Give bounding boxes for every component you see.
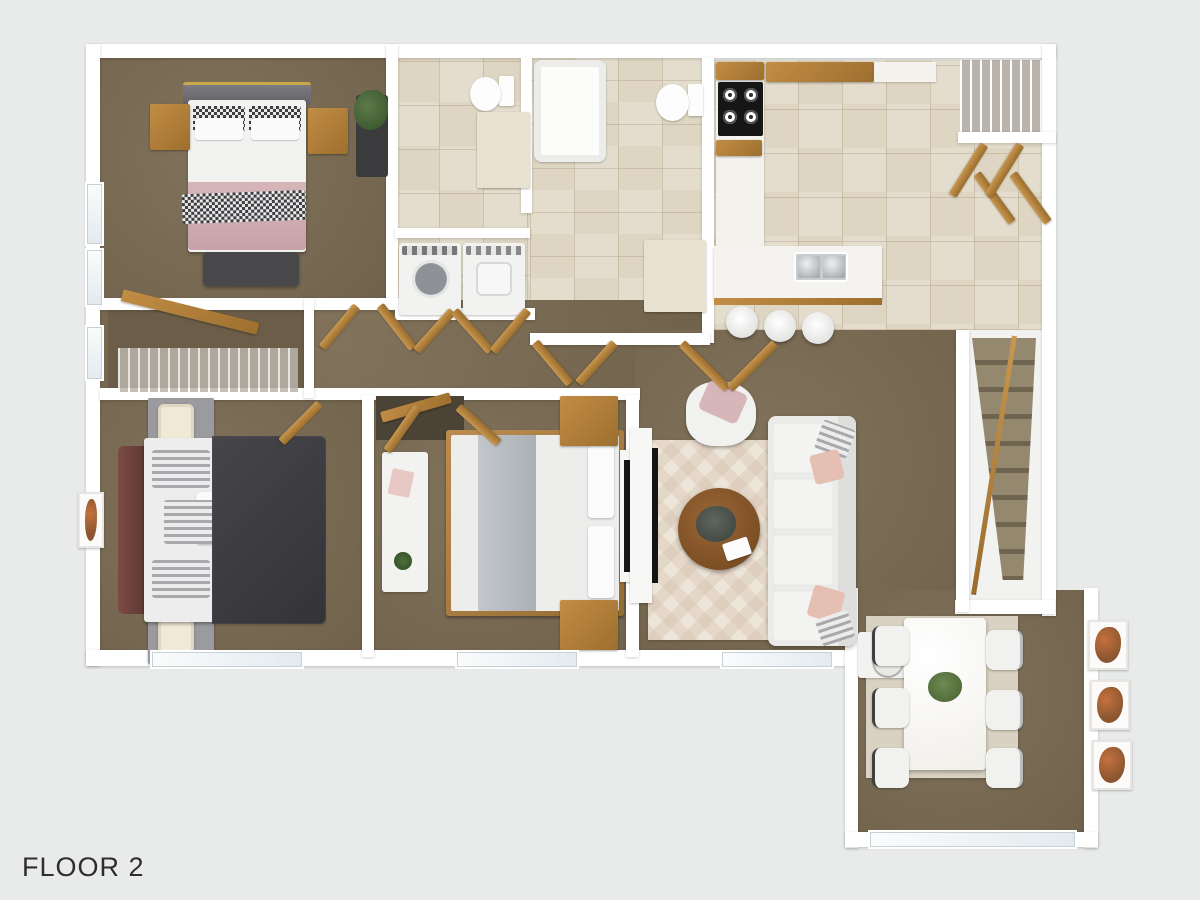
dining-chair-left-2	[872, 688, 909, 728]
living-tv	[652, 448, 658, 583]
dining-chair-right-2	[986, 690, 1023, 730]
bedroom2-headboard	[118, 446, 146, 614]
kitchen-barstool-3	[802, 312, 834, 344]
dining-wall-art-2	[1090, 680, 1130, 730]
bedroom3-nightstand-bottom	[560, 600, 618, 650]
bathroom2-toilet-bowl	[656, 84, 689, 121]
kitchen-barstool-2	[764, 310, 796, 342]
laundry-dryer-door	[476, 262, 512, 296]
dining-chair-right-3	[986, 748, 1023, 788]
laundry-washer-controls	[402, 246, 458, 255]
bedroom3-nightstand-top	[560, 396, 618, 446]
dining-chair-left-3	[872, 748, 909, 788]
dining-wall-art-3	[1092, 740, 1132, 790]
kitchen-upper-cabinets-wood	[766, 62, 874, 82]
bedroom1-pillow-white-left	[195, 118, 243, 140]
kitchen-sink-basin-right	[823, 256, 845, 278]
kitchen-cabinet-corner	[716, 62, 764, 80]
floorplan-render-page: { "floor_label": "FLOOR 2", "colors": { …	[0, 0, 1200, 900]
kitchen-barstool-1	[726, 306, 758, 338]
dining-chair-right-1	[986, 630, 1023, 670]
bathroom2-toilet-tank	[688, 84, 703, 116]
bedroom1-window-left-upper	[85, 182, 104, 246]
kitchen-counter-top-white	[874, 62, 936, 82]
kitchen-sink-basin-left	[798, 256, 820, 278]
bedroom2-pillow-mid	[164, 500, 216, 544]
bathroom1-toilet-tank	[499, 76, 514, 106]
closet-topright-wall-bottom	[958, 132, 1056, 143]
dining-window-bottom	[868, 830, 1077, 849]
floor-plan-3d-render	[0, 0, 1200, 900]
wall-bedroom1-bathroom1	[386, 44, 398, 310]
kitchen-lower-cabinets-wood	[716, 140, 762, 156]
bedroom3-throw-gray	[478, 435, 536, 611]
bedroom1-plant-leaves	[354, 90, 388, 130]
kitchen-stove-burner-1	[723, 88, 737, 102]
bedroom2-comforter-dark	[212, 436, 326, 624]
bedroom1-throw-dark	[182, 190, 307, 224]
closet-topright-floor	[960, 60, 1042, 135]
bedroom1-pillow-white-right	[251, 118, 299, 140]
bedroom3-pillow-bottom	[588, 526, 614, 598]
kitchen-peninsula-wood-edge	[714, 298, 882, 305]
dining-chair-left-1	[872, 626, 909, 666]
wall-bedroom2-bedroom3	[362, 395, 374, 657]
floor-label: FLOOR 2	[22, 852, 145, 883]
bathroom1-vanity	[477, 112, 530, 188]
bedroom1-foot-bench	[203, 252, 299, 286]
living-window-bottom	[720, 650, 834, 669]
bedroom3-desk-plant	[394, 552, 412, 570]
bedroom1-nightstand-right	[308, 108, 348, 154]
closet-window-left	[85, 325, 104, 381]
stairs-wall-left	[956, 330, 969, 612]
bedroom2-pillow-top	[152, 450, 210, 488]
bedroom2-wall-art	[78, 492, 104, 548]
bedroom2-pillow-bottom	[152, 560, 210, 598]
bedroom1-window-left-lower	[85, 248, 104, 307]
bathroom2-vanity	[644, 240, 706, 312]
bathroom1-toilet-bowl	[470, 77, 501, 111]
living-coffee-table-plant	[696, 506, 736, 542]
laundry-washer-door	[412, 260, 450, 298]
bedroom3-pillow-top	[588, 446, 614, 518]
living-sofa-cushion-2	[772, 478, 834, 530]
closet-middle-divider	[304, 298, 314, 398]
stairs-wall-bottom	[955, 600, 1055, 614]
outer-wall-right	[1042, 44, 1056, 616]
kitchen-stove-burner-2	[744, 88, 758, 102]
dining-wall-art-1	[1088, 620, 1128, 670]
kitchen-stove-burner-3	[723, 110, 737, 124]
living-tv-console	[630, 428, 652, 603]
kitchen-stove-burner-4	[744, 110, 758, 124]
closet-middle-wire-shelving	[118, 348, 298, 392]
laundry-dryer-controls	[466, 246, 522, 255]
bedroom1-nightstand-left	[150, 104, 190, 150]
outer-wall-top	[90, 44, 1056, 58]
bedroom2-window-bottom	[150, 650, 304, 669]
bathroom2-bathtub	[534, 60, 606, 162]
bedroom3-window-bottom	[455, 650, 579, 669]
wall-bathroom1-laundry	[395, 228, 530, 238]
living-sofa-cushion-3	[772, 534, 834, 586]
